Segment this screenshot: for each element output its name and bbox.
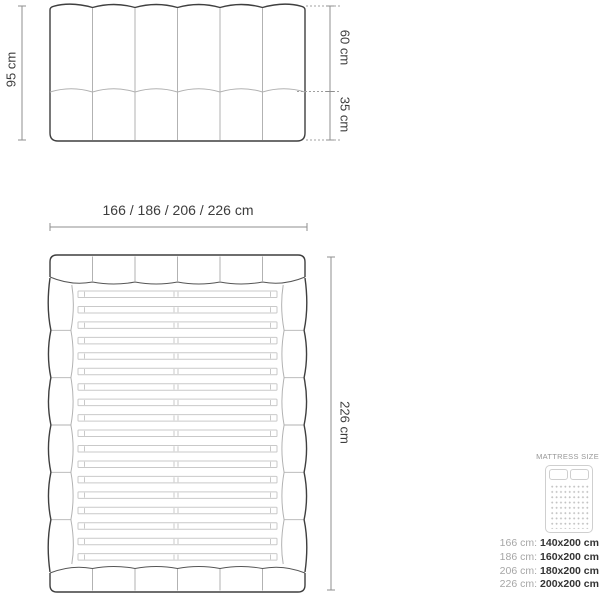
frame-width-label: 226 cm: [500, 578, 537, 590]
mattress-tufting-dots [549, 483, 589, 529]
height-total-dimension-label: 95 cm [4, 40, 19, 100]
frame-width-label: 206 cm: [500, 565, 537, 577]
mattress-size-row: 226 cm:200x200 cm [500, 578, 599, 592]
bed-dimension-diagram: 95 cm 60 cm 35 cm 166 / 186 / 206 / 226 … [0, 0, 600, 597]
mattress-size-list: 166 cm:140x200 cm 186 cm:160x200 cm 206 … [500, 537, 599, 592]
width-options-dimension-label: 166 / 186 / 206 / 226 cm [28, 203, 328, 218]
mattress-size-value: 200x200 cm [540, 578, 599, 590]
frame-width-label: 166 cm: [500, 537, 537, 549]
headboard-front-view-drawing [50, 4, 305, 141]
mattress-size-row: 206 cm:180x200 cm [500, 565, 599, 579]
length-dimension-line [327, 257, 335, 590]
frame-width-label: 186 cm: [500, 551, 537, 563]
pillow-icon [549, 469, 568, 480]
pillow-icon [570, 469, 589, 480]
height-lower-dimension-label: 35 cm [338, 85, 353, 145]
mattress-size-row: 186 cm:160x200 cm [500, 551, 599, 565]
mattress-size-value: 160x200 cm [540, 551, 599, 563]
width-dimension-line [50, 223, 307, 231]
length-dimension-label: 226 cm [338, 393, 353, 453]
mattress-size-title: MATTRESS SIZE [536, 452, 599, 461]
diagram-artwork [0, 0, 600, 597]
mattress-size-value: 180x200 cm [540, 565, 599, 577]
mattress-icon [545, 465, 593, 533]
mattress-size-row: 166 cm:140x200 cm [500, 537, 599, 551]
mattress-size-value: 140x200 cm [540, 537, 599, 549]
height-upper-dimension-label: 60 cm [338, 18, 353, 78]
bed-top-view-drawing [48, 255, 307, 592]
